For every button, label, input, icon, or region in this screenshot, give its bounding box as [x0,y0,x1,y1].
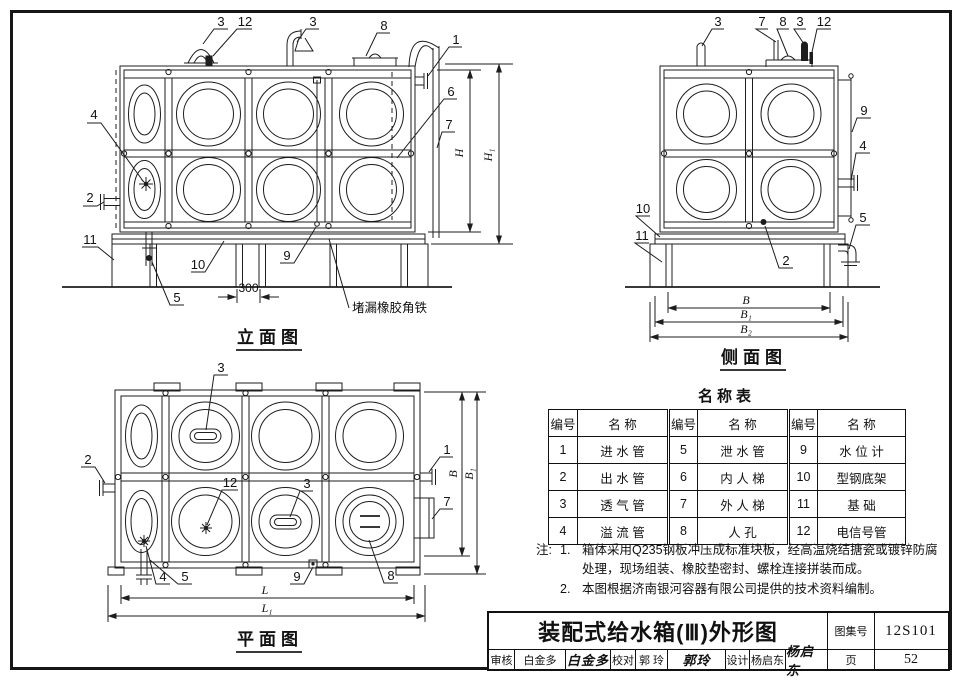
callout-label: 9 [293,569,300,584]
dim-300: 300 [238,281,258,295]
callout-label: 10 [636,201,650,216]
page-label: 页 [827,650,874,669]
elevation-view-linework [116,66,415,232]
page-number: 52 [874,650,947,669]
callout-label: 3 [217,360,224,375]
designer-signature: 杨启东 [785,650,827,669]
designer-name: 杨启东 [749,650,785,669]
title-block: 装配式给水箱(Ⅲ)外形图 图集号 12S101 审核 白金多 白金多 校对 郭 … [487,611,950,671]
header-cell: 编号 [789,410,818,437]
reviewer-signature: 白金多 [565,650,610,669]
callout-label: 8 [380,18,387,33]
callout-label: 7 [758,14,765,29]
part-no: 7 [669,491,698,518]
callout-label: 1 [452,32,459,47]
callout-label: 8 [779,14,786,29]
designer-role-label: 设计 [725,650,749,669]
callout-label: 12 [817,14,831,29]
note-text: 箱体采用Q235钢板冲压成标准块板，经高温烧结搪瓷或镀锌防腐处理，现场组装、橡胶… [582,541,950,579]
parts-table-row: 3 透 气 管 7 外 人 梯 11 基 础 [549,491,906,518]
parts-table: 编号 名 称 编号 名 称 编号 名 称 1 进 水 管 5 泄 水 管 9 水… [548,409,906,545]
checker-name: 郭 玲 [635,650,667,669]
dim-b1: B₁ [462,468,476,480]
part-no: 1 [549,437,578,464]
note-number: 1. [560,541,582,579]
callout-label: 3 [309,14,316,29]
dim-l1: L₁ [261,601,273,615]
parts-table-title: 名称表 [548,385,905,406]
leak-seal-annotation: 堵漏橡胶角铁 [352,300,428,315]
callout-label: 4 [90,107,97,122]
header-cell: 名 称 [578,410,669,437]
part-name: 泄 水 管 [698,437,789,464]
callout-label: 8 [387,568,394,583]
callout-label: 5 [181,569,188,584]
part-no: 5 [669,437,698,464]
parts-table-row: 2 出 水 管 6 内 人 梯 10 型钢底架 [549,464,906,491]
callout-label: 3 [714,14,721,29]
dim-b2: B₂ [740,322,752,336]
part-no: 10 [789,464,818,491]
checker-role-label: 校对 [610,650,635,669]
callout-label: 7 [443,494,450,509]
parts-table-section: 名称表 编号 名 称 编号 名 称 编号 名 称 1 进 水 管 5 泄 水 管… [548,385,905,545]
part-name: 进 水 管 [578,437,669,464]
header-cell: 名 称 [818,410,906,437]
callout-label: 3 [303,476,310,491]
callout-label: 5 [859,210,866,225]
drawing-sheet: 300 H H₁ 3 12 3 8 1 4 6 7 2 11 10 5 9 堵漏… [0,0,962,682]
callout-label: 3 [217,14,224,29]
part-name: 型钢底架 [818,464,906,491]
part-no: 9 [789,437,818,464]
dim-b1: B₁ [740,307,752,321]
callout-label: 12 [238,14,252,29]
title-block-row-1: 装配式给水箱(Ⅲ)外形图 图集号 12S101 [489,613,948,650]
part-name: 内 人 梯 [698,464,789,491]
side-view-linework [660,66,838,232]
callout-label: 2 [84,452,91,467]
callout-label: 6 [447,84,454,99]
dim-h1: H₁ [481,149,495,163]
part-name: 出 水 管 [578,464,669,491]
part-no: 2 [549,464,578,491]
elevation-dimensions: 300 H H₁ [218,64,513,303]
callout-label: 11 [635,228,649,243]
callout-label: 1 [443,442,450,457]
dim-h: H [452,147,466,158]
plan-view-linework [108,383,420,575]
part-name: 水 位 计 [818,437,906,464]
callout-label: 7 [445,117,452,132]
side-dimensions: B B₁ B₂ [650,292,848,342]
callout-label: 2 [782,253,789,268]
title-block-row-2: 审核 白金多 白金多 校对 郭 玲 郭玲 设计 杨启东 杨启东 页 52 [489,650,948,669]
callout-label: 5 [173,290,180,305]
callout-label: 9 [283,248,290,263]
header-cell: 编号 [669,410,698,437]
part-name: 透 气 管 [578,491,669,518]
reviewer-role-label: 审核 [489,650,514,669]
callout-label: 4 [859,138,866,153]
callout-label: 9 [860,103,867,118]
header-cell: 编号 [549,410,578,437]
reviewer-name: 白金多 [514,650,565,669]
callout-label: 3 [796,14,803,29]
header-cell: 名 称 [698,410,789,437]
dim-b: B [742,293,750,307]
note-text: 本图根据济南银河容器有限公司提供的技术资料编制。 [582,580,950,599]
part-no: 3 [549,491,578,518]
elevation-caption: 立面图 [237,327,303,347]
elevation-callouts: 3 12 3 8 1 4 6 7 2 11 10 5 9 堵漏橡胶角铁 [82,14,462,315]
atlas-number-value: 12S101 [874,613,947,649]
callout-label: 12 [223,475,237,490]
parts-table-row: 1 进 水 管 5 泄 水 管 9 水 位 计 [549,437,906,464]
side-caption: 侧面图 [721,347,787,367]
dim-b: B [446,470,460,478]
plan-caption: 平面图 [237,630,303,649]
callout-label: 10 [191,257,205,272]
dim-l: L [261,583,269,597]
note-number: 2. [560,580,582,599]
notes-section: 注: 1. 箱体采用Q235钢板冲压成标准块板，经高温烧结搪瓷或镀锌防腐处理，现… [536,541,950,598]
checker-signature: 郭玲 [667,650,725,669]
atlas-number-label: 图集号 [827,613,874,649]
notes-prefix: 注: [536,541,560,579]
callout-label: 11 [83,232,97,247]
part-name: 外 人 梯 [698,491,789,518]
part-name: 基 础 [818,491,906,518]
parts-table-header-row: 编号 名 称 编号 名 称 编号 名 称 [549,410,906,437]
callout-label: 2 [86,190,93,205]
drawing-title: 装配式给水箱(Ⅲ)外形图 [489,613,827,649]
part-no: 6 [669,464,698,491]
part-no: 11 [789,491,818,518]
